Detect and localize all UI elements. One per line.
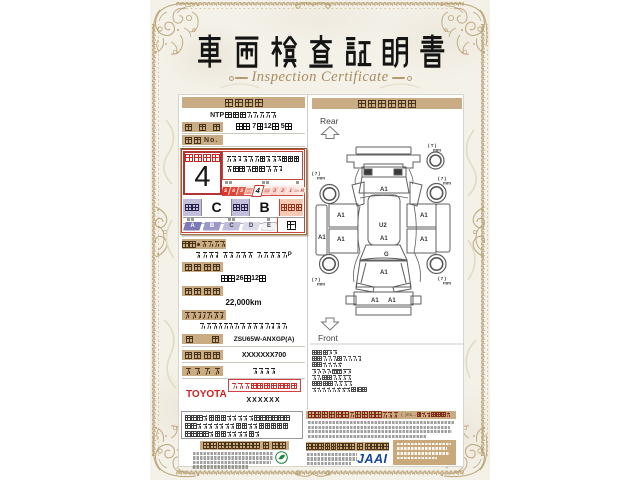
svg-text:Front: Front <box>318 333 338 343</box>
svg-text:A1: A1 <box>318 235 326 241</box>
svg-text:A1: A1 <box>337 237 345 243</box>
svg-text:mm: mm <box>317 282 325 287</box>
svg-text:U2: U2 <box>379 223 387 229</box>
svg-text:A1: A1 <box>420 213 428 219</box>
svg-text:A1: A1 <box>388 298 396 304</box>
svg-text:mm: mm <box>443 181 451 186</box>
svg-text:G: G <box>384 252 389 258</box>
svg-text:mm: mm <box>433 148 441 153</box>
svg-text:A1: A1 <box>371 298 379 304</box>
svg-text:mm: mm <box>443 281 451 286</box>
svg-text:A1: A1 <box>337 213 345 219</box>
svg-text:A1: A1 <box>380 270 388 276</box>
svg-text:Rear: Rear <box>320 116 339 126</box>
svg-text:A1: A1 <box>380 187 388 193</box>
svg-text:A1: A1 <box>380 236 388 242</box>
svg-text:A1: A1 <box>420 237 428 243</box>
svg-text:mm: mm <box>317 176 325 181</box>
